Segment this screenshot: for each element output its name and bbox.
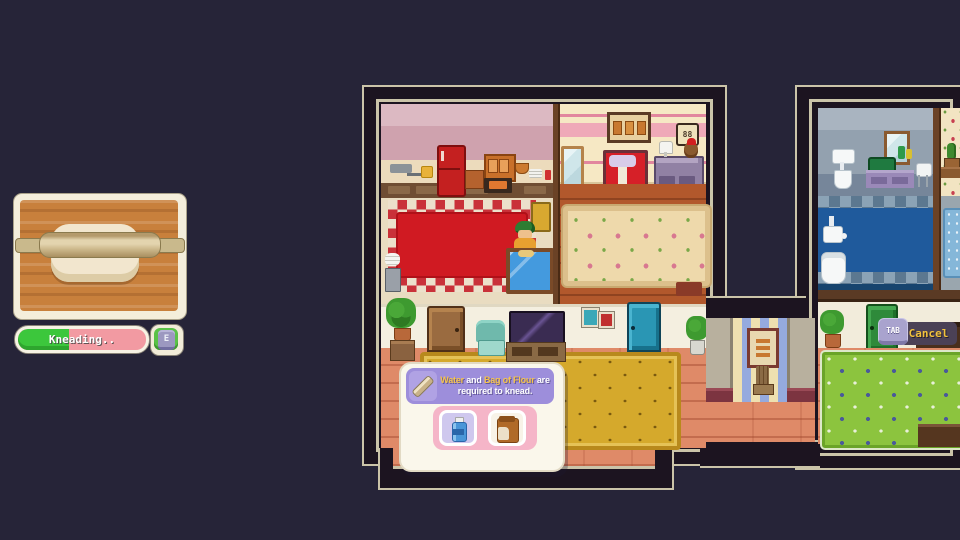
refrigerator-handle (441, 151, 444, 161)
toilet-pipe (829, 216, 834, 226)
bed-pillow (609, 155, 636, 167)
kitchen-bedroom-divider (553, 104, 560, 304)
plant-pot-3 (825, 334, 841, 348)
hallway-chair-back (756, 366, 769, 386)
soda-can (545, 170, 551, 180)
keycap-e-icon: E (158, 330, 175, 350)
knead-key-button[interactable]: E (150, 324, 184, 356)
hallway-picture-frame (747, 328, 779, 368)
rolling-pin-glyph (411, 374, 434, 397)
game-screen: 88 (0, 0, 960, 540)
dining-room-divider (818, 290, 960, 302)
hallway-bottom-outline (700, 440, 820, 468)
tv-sideboard (506, 342, 566, 362)
wooden-door (427, 306, 465, 352)
jar-art (637, 121, 646, 135)
small-picture-teal (582, 308, 599, 327)
tooltip-conjunction: and (464, 375, 484, 385)
water-bottle-icon (452, 417, 465, 440)
shampoo-bottle-green (898, 146, 905, 159)
vanity-drawer (892, 177, 908, 184)
required-item-2: Bag of Flour (484, 375, 535, 385)
tv-screen (509, 311, 565, 344)
plate-pile (385, 253, 400, 266)
lamp-stem (664, 152, 667, 157)
bedroom-mat (676, 282, 702, 296)
toilet-bowl (821, 252, 846, 284)
required-item-1: Water (440, 375, 464, 385)
green-door-knob (870, 326, 874, 330)
hutch-slot (499, 159, 509, 173)
cancel-button-label: Cancel (909, 327, 949, 340)
plant-room-rug (943, 208, 960, 278)
jar-art (625, 121, 634, 135)
potted-plant-2 (686, 316, 708, 340)
tooltip-text: Water and Bag of Flour are required to k… (438, 368, 552, 404)
potted-plant-3 (820, 310, 844, 334)
potted-plant (386, 298, 416, 328)
picture-frame-jars (607, 112, 651, 143)
hallway-pillar-right (787, 318, 815, 388)
rolling-pin-icon (39, 232, 161, 258)
frying-pan-icon (390, 164, 412, 173)
picture-shelf-art (756, 339, 770, 357)
plant-pot-2 (690, 340, 705, 355)
stove-window (489, 181, 507, 189)
toilet-tank (823, 226, 843, 243)
knead-progress-bar: Kneading.. (14, 325, 150, 354)
wall-sink (834, 170, 852, 189)
rolling-pin-handle-right (157, 238, 185, 253)
required-item-slot-flour (488, 410, 526, 446)
bathroom-plantroom-divider (933, 108, 941, 304)
blue-door-knob (631, 326, 635, 330)
sideboard-drawer (538, 347, 558, 356)
counter-drawer (524, 186, 546, 194)
required-item-slot-water (439, 410, 477, 446)
tooltip-line: Water and Bag of Flour are required to k… (438, 375, 552, 398)
requirement-tooltip-card: Water and Bag of Flour are required to k… (399, 362, 565, 472)
cancel-button[interactable]: Cancel (900, 322, 957, 345)
sideboard-drawer (512, 347, 532, 356)
player-character (514, 221, 536, 251)
bottle-label (453, 429, 464, 435)
hallway-pillar-left (706, 318, 733, 388)
butter-dish (421, 166, 433, 178)
hutch-slot (488, 159, 498, 173)
keycap-tab-icon[interactable]: TAB (878, 318, 908, 345)
dresser-top (656, 158, 698, 163)
flour-bag-icon (497, 416, 517, 441)
rolling-pin-icon (409, 371, 437, 401)
vanity-drawer (871, 177, 887, 184)
tooltip-header: Water and Bag of Flour are required to k… (406, 368, 554, 404)
door-knob (455, 328, 459, 332)
small-picture-red (599, 312, 614, 328)
hallway-chair-seat (753, 384, 774, 395)
dining-counter-bottom (918, 424, 960, 447)
mint-chair (476, 320, 505, 342)
required-items-container (433, 406, 537, 450)
toilet-flush-knob (841, 233, 847, 239)
towel-stool-legs (918, 175, 928, 187)
hallway-floor (706, 402, 815, 442)
refrigerator-divider (439, 168, 460, 170)
bedroom-quilt-rug (563, 206, 710, 286)
plant-shelf (941, 167, 960, 178)
trash-bin (385, 268, 401, 292)
plate-stack (529, 169, 542, 178)
small-cabinet (465, 170, 484, 189)
flour-bag-label (498, 427, 509, 440)
shampoo-bottle-yellow (906, 149, 912, 159)
dough-on-table (518, 250, 534, 257)
jar-art (613, 121, 622, 135)
counter-drawer (388, 186, 410, 194)
mint-chair-seat (478, 340, 505, 356)
vanity-counter (866, 170, 914, 188)
plant-stand (390, 340, 415, 361)
teddy-hat (687, 138, 696, 145)
mixing-bowl (515, 163, 529, 174)
bathroom-tile-border-top (818, 196, 933, 208)
knead-progress-label: Kneading.. (15, 326, 149, 353)
counter-drawer (416, 186, 438, 194)
flour-bag-flap (499, 416, 515, 422)
